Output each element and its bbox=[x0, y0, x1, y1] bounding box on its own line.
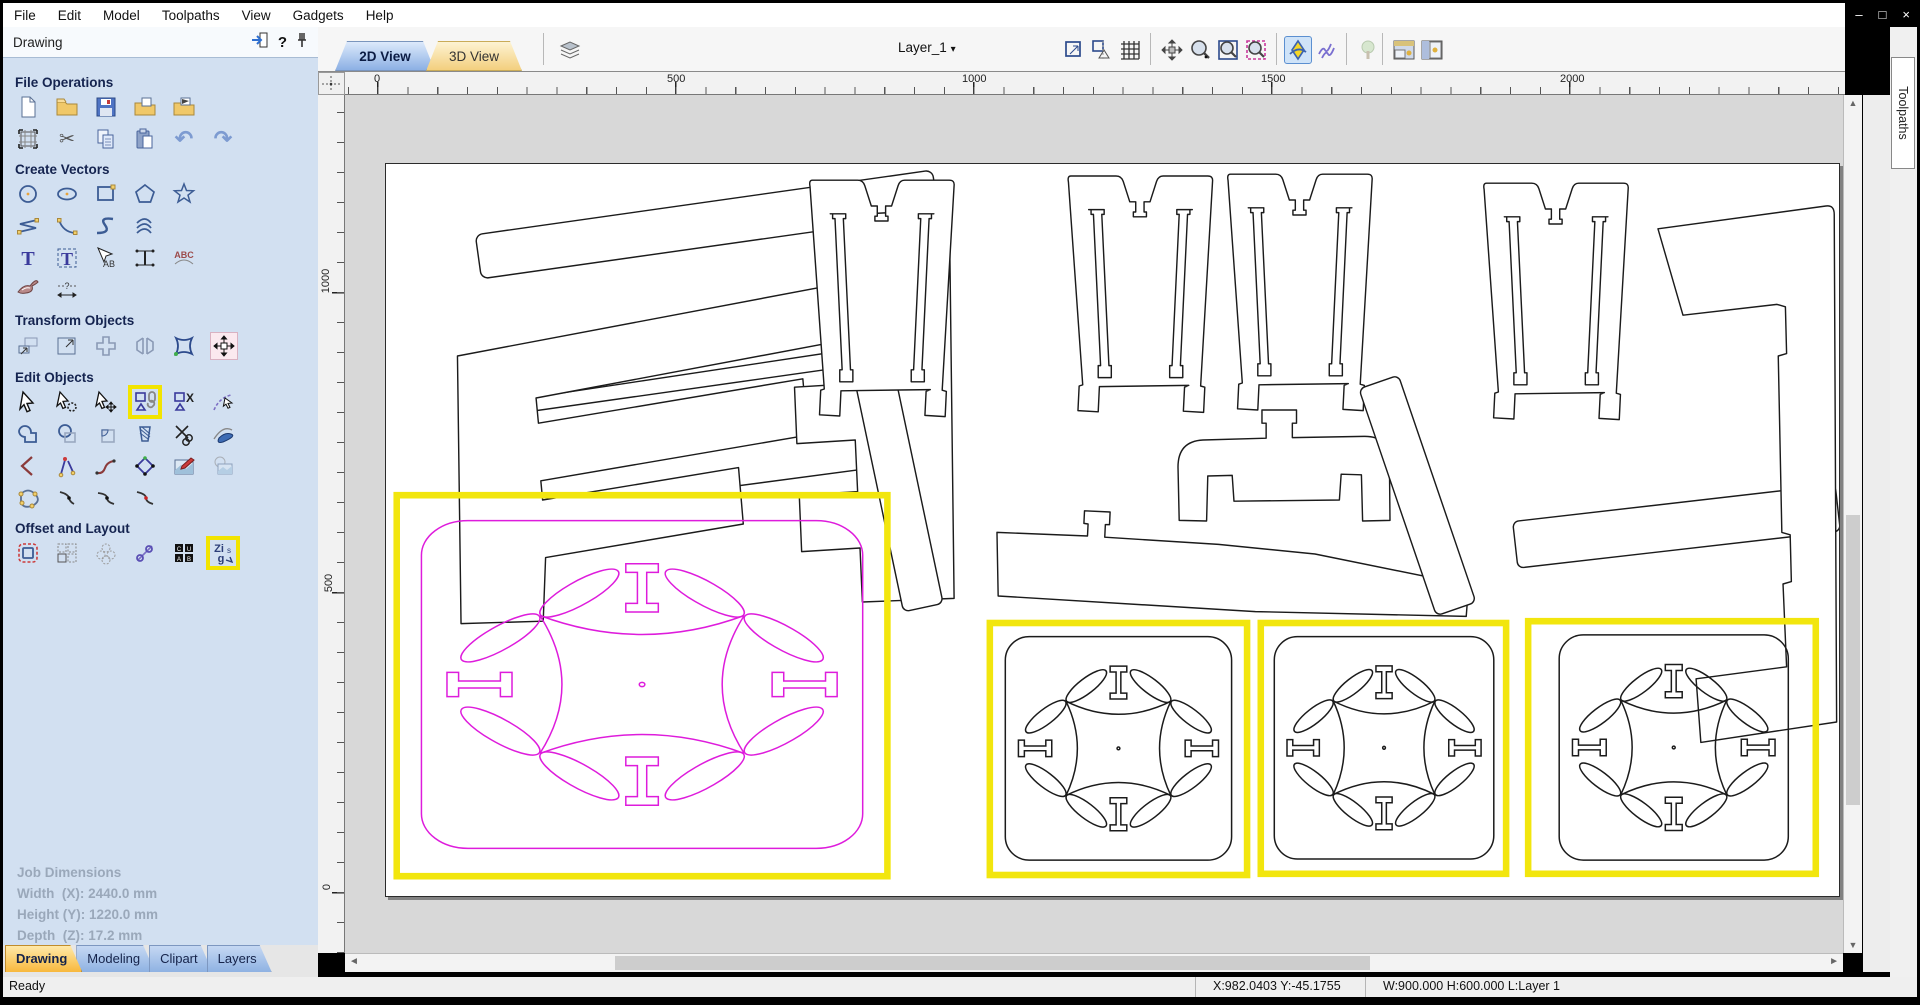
svg-text:A: A bbox=[177, 557, 181, 563]
snap-grid-icon[interactable] bbox=[1116, 36, 1144, 64]
node-edit-tool-icon[interactable] bbox=[54, 389, 80, 415]
sketch-icon[interactable] bbox=[132, 213, 158, 239]
drawing-panel: Drawing ? File Operations ✂ ↶ bbox=[3, 27, 318, 977]
copy-icon[interactable] bbox=[93, 126, 119, 152]
menu-gadgets[interactable]: Gadgets bbox=[282, 8, 355, 23]
delete-node-icon[interactable] bbox=[132, 485, 158, 511]
job-dimensions-title: Job Dimensions bbox=[17, 863, 158, 884]
subtract-vectors-icon[interactable] bbox=[54, 421, 80, 447]
svg-text:T: T bbox=[21, 248, 35, 270]
import-vectors-icon[interactable] bbox=[132, 94, 158, 120]
status-bar: Ready X:982.0403 Y:-45.1755 W:900.000 H:… bbox=[3, 977, 1917, 997]
open-file-icon[interactable] bbox=[54, 94, 80, 120]
draw-arc-icon[interactable] bbox=[54, 213, 80, 239]
trace-bitmap-icon[interactable] bbox=[15, 277, 41, 303]
text-on-curve-icon[interactable]: ABC bbox=[171, 245, 197, 271]
vruler-label-0: 0 bbox=[321, 884, 333, 890]
pin-icon[interactable] bbox=[296, 32, 308, 53]
svg-text:ABC: ABC bbox=[174, 250, 194, 260]
edit-picture-icon[interactable] bbox=[171, 453, 197, 479]
panel-copy-2[interactable] bbox=[1274, 637, 1493, 859]
menu-model[interactable]: Model bbox=[92, 8, 151, 23]
hruler-label-2000: 2000 bbox=[1560, 73, 1584, 85]
array-copy-icon[interactable] bbox=[54, 540, 80, 566]
draw-rectangle-icon[interactable] bbox=[93, 181, 119, 207]
job-dimensions: Job Dimensions Width (X): 2440.0 mm Heig… bbox=[17, 863, 158, 947]
drawing-panel-header: Drawing ? bbox=[3, 27, 318, 58]
toolpaths-tab[interactable]: Toolpaths bbox=[1891, 57, 1915, 169]
right-tab-strip: Toolpaths bbox=[1890, 27, 1917, 977]
set-size-icon[interactable] bbox=[54, 333, 80, 359]
job-height: Height (Y): 1220.0 mm bbox=[17, 905, 158, 926]
svg-text:g: g bbox=[218, 553, 225, 565]
section-transform-objects: Transform Objects bbox=[15, 313, 318, 328]
vertical-scroll-thumb[interactable] bbox=[1846, 515, 1860, 805]
tab-clipart[interactable]: Clipart bbox=[149, 945, 213, 972]
move-objects-icon[interactable] bbox=[15, 333, 41, 359]
horizontal-scrollbar[interactable]: ◄ ► bbox=[345, 953, 1843, 972]
new-file-icon[interactable] bbox=[15, 94, 41, 120]
svg-text:?: ? bbox=[64, 281, 69, 291]
align-objects-icon[interactable] bbox=[93, 333, 119, 359]
snap-objects-icon[interactable] bbox=[1060, 36, 1088, 64]
menu-view[interactable]: View bbox=[231, 8, 282, 23]
menu-file[interactable]: File bbox=[3, 8, 47, 23]
3d-preview-icon bbox=[1354, 36, 1382, 64]
hruler-label-0: 0 bbox=[374, 73, 380, 85]
section-file-operations: File Operations bbox=[15, 75, 318, 90]
trim-vectors-icon[interactable] bbox=[93, 421, 119, 447]
menu-toolpaths[interactable]: Toolpaths bbox=[151, 8, 231, 23]
draw-circle-icon[interactable] bbox=[15, 181, 41, 207]
2d-view-canvas[interactable] bbox=[345, 95, 1843, 953]
toolpath-drawing-icon[interactable] bbox=[1312, 36, 1340, 64]
paste-icon[interactable] bbox=[132, 126, 158, 152]
vruler-label-1000: 1000 bbox=[320, 269, 332, 293]
hruler-label-500: 500 bbox=[667, 73, 685, 85]
distort-object-icon[interactable] bbox=[171, 333, 197, 359]
svg-text:U: U bbox=[187, 547, 191, 553]
edit-text-spacing-icon[interactable]: AB bbox=[93, 245, 119, 271]
toggle-toolpath-visibility-icon[interactable] bbox=[1284, 36, 1312, 64]
svg-text:T: T bbox=[61, 249, 73, 269]
job-setup-icon[interactable] bbox=[15, 126, 41, 152]
join-vectors-icon[interactable] bbox=[54, 453, 80, 479]
layers-stack-icon[interactable] bbox=[556, 36, 584, 64]
close-button[interactable]: × bbox=[1902, 7, 1910, 22]
drawing-panel-body: File Operations ✂ ↶ ↷ Create Vectors bbox=[3, 57, 318, 945]
view-toolbar: 2D View 3D View Layer_1 ▾ bbox=[318, 27, 1845, 72]
layout-panels-left-icon[interactable] bbox=[1390, 36, 1418, 64]
draw-polygon-icon[interactable] bbox=[132, 181, 158, 207]
layout-blocks-icon[interactable]: CUAB bbox=[171, 540, 197, 566]
fillet-tool-icon[interactable] bbox=[15, 453, 41, 479]
pan-view-icon[interactable] bbox=[1158, 36, 1186, 64]
interactive-transform-icon[interactable] bbox=[93, 389, 119, 415]
job-sheet bbox=[385, 163, 1840, 897]
close-vector-icon[interactable] bbox=[132, 453, 158, 479]
layout-panels-right-icon[interactable] bbox=[1418, 36, 1446, 64]
select-tool-icon[interactable] bbox=[15, 389, 41, 415]
cut-vector-point-icon[interactable] bbox=[93, 485, 119, 511]
status-ready: Ready bbox=[9, 979, 45, 993]
text-on-line-icon[interactable] bbox=[132, 245, 158, 271]
text-box-icon[interactable]: T bbox=[54, 245, 80, 271]
group-objects-icon[interactable] bbox=[132, 389, 158, 415]
undo-icon[interactable]: ↶ bbox=[171, 126, 197, 152]
export-vectors-icon[interactable] bbox=[171, 94, 197, 120]
draw-text-icon[interactable]: T bbox=[15, 245, 41, 271]
hruler-label-1000: 1000 bbox=[962, 73, 986, 85]
svg-text:C: C bbox=[177, 547, 182, 553]
vertical-scrollbar[interactable]: ▲ ▼ bbox=[1843, 95, 1862, 953]
section-create-vectors: Create Vectors bbox=[15, 162, 318, 177]
svg-text:X: X bbox=[186, 391, 194, 405]
menu-edit[interactable]: Edit bbox=[47, 8, 92, 23]
insert-node-icon[interactable] bbox=[54, 485, 80, 511]
menu-help[interactable]: Help bbox=[355, 8, 405, 23]
draw-ellipse-icon[interactable] bbox=[54, 181, 80, 207]
window-controls: – □ × bbox=[1855, 3, 1916, 25]
horizontal-ruler: 0 500 1000 1500 2000 bbox=[345, 72, 1845, 95]
status-selection-dimensions: W:900.000 H:600.000 L:Layer 1 bbox=[1383, 979, 1560, 993]
weld-vectors-icon[interactable] bbox=[15, 421, 41, 447]
dimension-icon[interactable]: ? bbox=[54, 277, 80, 303]
minimize-button[interactable]: – bbox=[1855, 7, 1862, 22]
tab-modeling[interactable]: Modeling bbox=[76, 945, 155, 972]
svg-text:s: s bbox=[227, 546, 231, 555]
zoom-box-icon[interactable] bbox=[1214, 36, 1242, 64]
vruler-label-500: 500 bbox=[323, 574, 335, 592]
menu-bar: File Edit Model Toolpaths View Gadgets H… bbox=[3, 3, 1845, 28]
tab-3d-view[interactable]: 3D View bbox=[426, 41, 522, 71]
redo-icon[interactable]: ↷ bbox=[210, 126, 236, 152]
snap-geometry-icon[interactable] bbox=[1088, 36, 1116, 64]
mirror-objects-icon[interactable] bbox=[132, 333, 158, 359]
vertical-ruler: 1000 500 0 bbox=[318, 95, 345, 953]
maximize-button[interactable]: □ bbox=[1879, 7, 1887, 22]
vector-drawing bbox=[386, 164, 1839, 896]
job-width: Width (X): 2440.0 mm bbox=[17, 884, 158, 905]
scroll-right-arrow[interactable]: ► bbox=[1829, 956, 1839, 967]
zoom-interactive-icon[interactable] bbox=[1186, 36, 1214, 64]
scroll-up-arrow[interactable]: ▲ bbox=[1844, 98, 1862, 108]
horizontal-scroll-thumb[interactable] bbox=[615, 956, 1370, 970]
smooth-polyline-icon[interactable] bbox=[93, 453, 119, 479]
tab-layers[interactable]: Layers bbox=[207, 945, 272, 972]
svg-text:AB: AB bbox=[103, 259, 115, 269]
scroll-down-arrow[interactable]: ▼ bbox=[1844, 940, 1862, 950]
panel-tab-bar: Drawing Modeling Clipart Layers bbox=[3, 945, 318, 977]
help-icon[interactable]: ? bbox=[278, 34, 287, 51]
tab-2d-view[interactable]: 2D View bbox=[335, 41, 435, 71]
status-cursor-position: X:982.0403 Y:-45.1755 bbox=[1213, 979, 1341, 993]
draw-curve-icon[interactable] bbox=[93, 213, 119, 239]
move-to-position-icon[interactable] bbox=[210, 332, 238, 360]
section-edit-objects: Edit Objects bbox=[15, 370, 318, 385]
nested-parts[interactable] bbox=[457, 170, 1839, 742]
copy-along-vector-icon[interactable] bbox=[132, 540, 158, 566]
cut-icon[interactable]: ✂ bbox=[54, 126, 80, 152]
ruler-origin-box bbox=[318, 72, 345, 95]
edit-nodes-icon[interactable] bbox=[15, 485, 41, 511]
draw-polyline-icon[interactable] bbox=[15, 213, 41, 239]
job-depth: Depth (Z): 17.2 mm bbox=[17, 926, 158, 947]
zoom-selection-icon[interactable] bbox=[1242, 36, 1270, 64]
application-window: File Edit Model Toolpaths View Gadgets H… bbox=[0, 0, 1920, 1005]
ungroup-objects-icon[interactable]: X bbox=[171, 389, 197, 415]
panel-copy-3[interactable] bbox=[1559, 635, 1788, 860]
layer-selector[interactable]: Layer_1 ▾ bbox=[898, 40, 956, 55]
slice-vectors-icon[interactable] bbox=[171, 421, 197, 447]
hruler-label-1500: 1500 bbox=[1261, 73, 1285, 85]
panel-copy-1[interactable] bbox=[1005, 637, 1231, 860]
tab-drawing[interactable]: Drawing bbox=[5, 945, 82, 972]
auto-hide-panel-icon[interactable] bbox=[251, 32, 269, 53]
fit-curve-icon[interactable] bbox=[210, 389, 236, 415]
draw-star-icon[interactable] bbox=[171, 181, 197, 207]
nest-parts-icon[interactable]: Zigs bbox=[210, 540, 236, 566]
crop-picture-icon[interactable] bbox=[210, 453, 236, 479]
scroll-left-arrow[interactable]: ◄ bbox=[349, 956, 359, 967]
save-file-icon[interactable] bbox=[93, 94, 119, 120]
section-offset-and-layout: Offset and Layout bbox=[15, 521, 318, 536]
circular-array-icon[interactable] bbox=[93, 540, 119, 566]
svg-text:B: B bbox=[187, 557, 191, 563]
panel-title: Drawing bbox=[3, 35, 251, 50]
fill-vectors-icon[interactable] bbox=[132, 421, 158, 447]
extend-vectors-icon[interactable] bbox=[210, 421, 236, 447]
offset-vectors-icon[interactable] bbox=[15, 540, 41, 566]
